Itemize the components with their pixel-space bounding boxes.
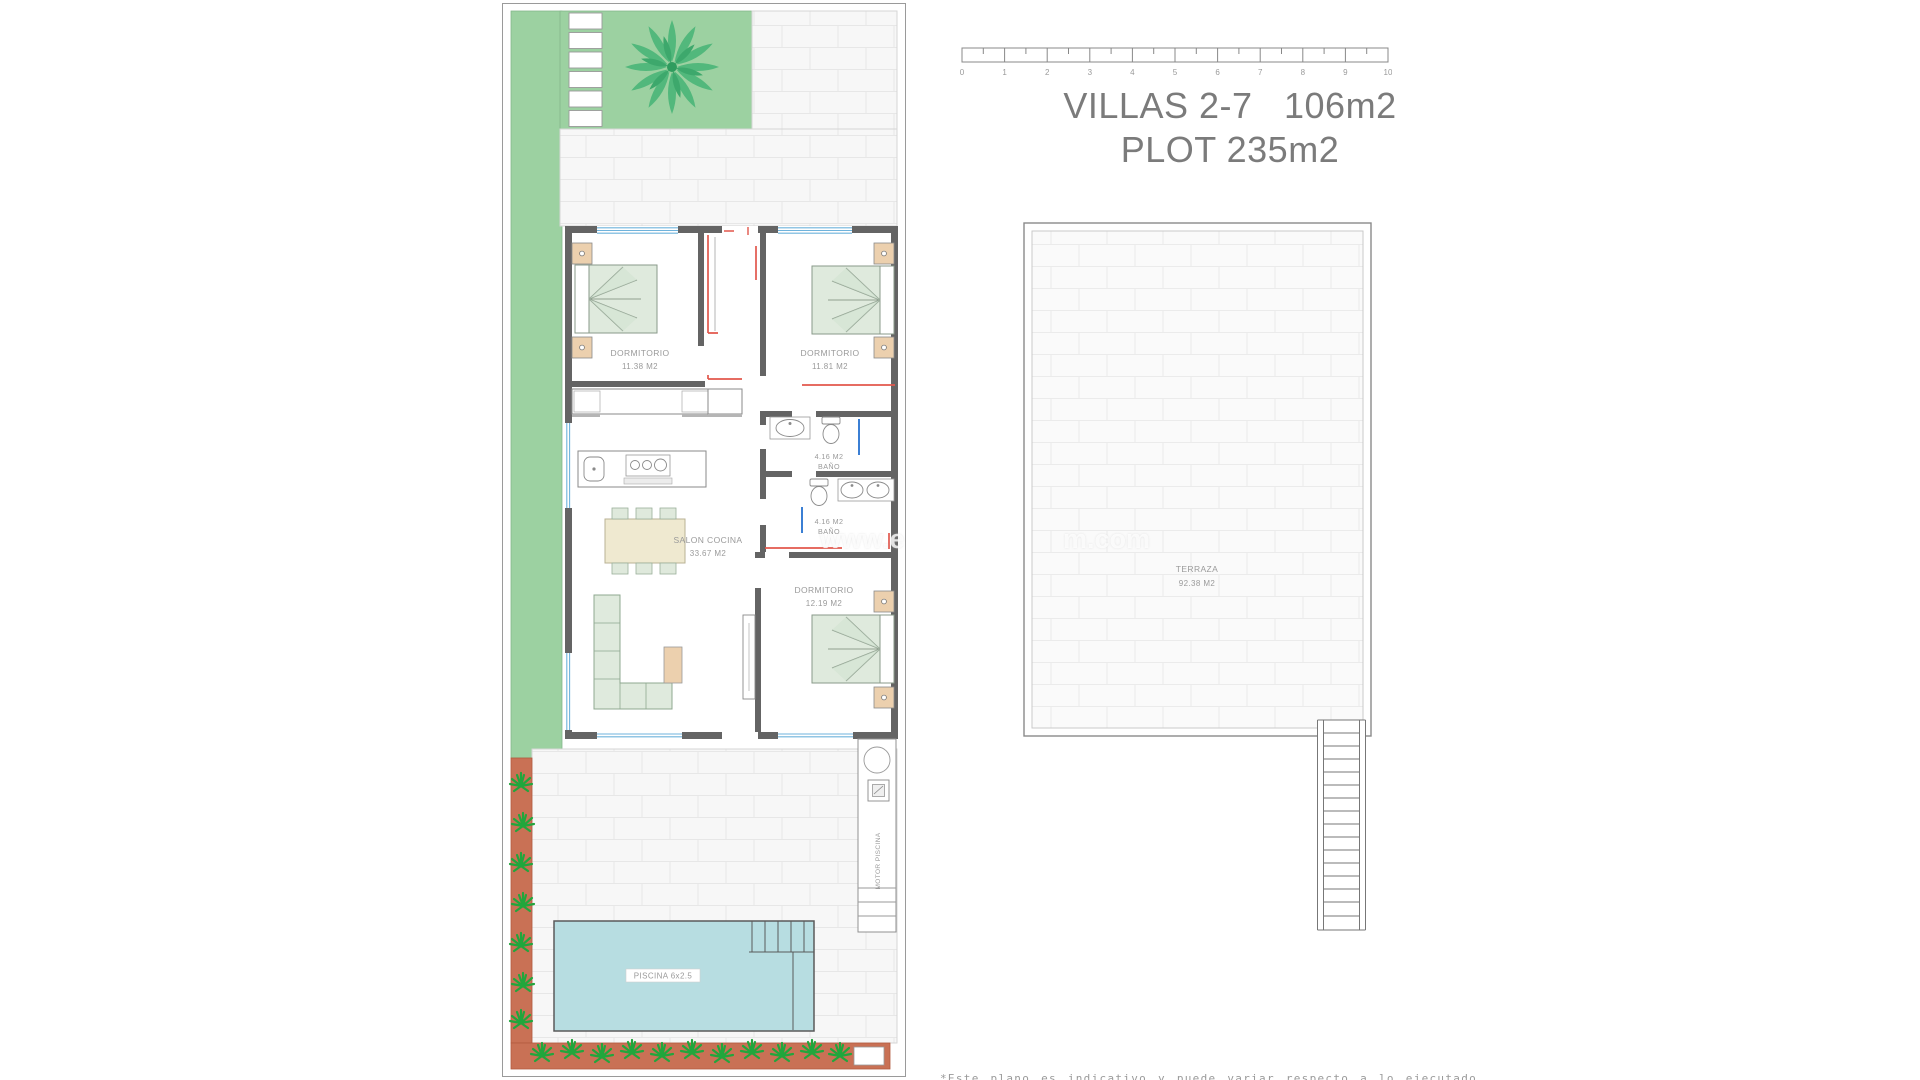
terrace-area: 92.38 M2: [1179, 579, 1216, 588]
villa-plan-page: PISCINA 6x2.5: [0, 0, 1920, 1080]
back-door: [722, 732, 758, 739]
svg-text:5: 5: [1173, 68, 1178, 77]
room-area: 4.16 M2: [815, 452, 844, 461]
terrace-name: TERRAZA: [1176, 564, 1218, 574]
svg-text:8: 8: [1301, 68, 1306, 77]
room-name: DORMITORIO: [800, 348, 859, 358]
room-name: DORMITORIO: [794, 585, 853, 595]
swimming-pool: PISCINA 6x2.5: [554, 921, 814, 1031]
svg-text:7: 7: [1258, 68, 1263, 77]
disclaimer-line-es: *Este plano es indicativo y puede variar…: [940, 1072, 1528, 1080]
pool-label: PISCINA 6x2.5: [634, 972, 693, 981]
room-area: 11.81 M2: [812, 362, 848, 371]
front-door: [722, 226, 758, 233]
room-name: BAÑO: [818, 527, 840, 536]
svg-text:1: 1: [1002, 68, 1007, 77]
svg-text:9: 9: [1343, 68, 1348, 77]
title-block: VILLAS 2-7 106m2 PLOT 235m2: [1020, 84, 1440, 172]
room-name: SALON COCINA: [673, 535, 742, 545]
svg-text:6: 6: [1215, 68, 1220, 77]
svg-text:10: 10: [1384, 68, 1392, 77]
page-subtitle: PLOT 235m2: [1020, 128, 1440, 172]
terrace-plan: TERRAZA 92.38 M2: [1023, 222, 1372, 934]
terrace-floor: [1032, 231, 1363, 728]
room-area: 33.67 M2: [690, 549, 727, 558]
scale-bar-labels: 0 1 2 3 4 5 6 7 8 9 10: [960, 68, 1392, 77]
pool-utility-room: MOTOR PISCINA: [858, 739, 896, 932]
utility-label: MOTOR PISCINA: [875, 832, 882, 889]
scale-bar: 0 1 2 3 4 5 6 7 8 9 10: [960, 42, 1392, 82]
room-name: DORMITORIO: [610, 348, 669, 358]
svg-text:3: 3: [1088, 68, 1093, 77]
svg-text:2: 2: [1045, 68, 1050, 77]
svg-text:4: 4: [1130, 68, 1135, 77]
room-name: BAÑO: [818, 462, 840, 471]
room-area: 12.19 M2: [806, 599, 843, 608]
side-table: [664, 647, 682, 683]
disclaimer: *Este plano es indicativo y puede variar…: [940, 1042, 1528, 1080]
room-area: 11.38 M2: [622, 362, 658, 371]
terrace-stairs: [1317, 720, 1366, 930]
site-plan: PISCINA 6x2.5: [502, 3, 906, 1077]
room-area: 4.16 M2: [815, 517, 844, 526]
page-title: VILLAS 2-7 106m2: [1020, 84, 1440, 128]
svg-text:0: 0: [960, 68, 965, 77]
